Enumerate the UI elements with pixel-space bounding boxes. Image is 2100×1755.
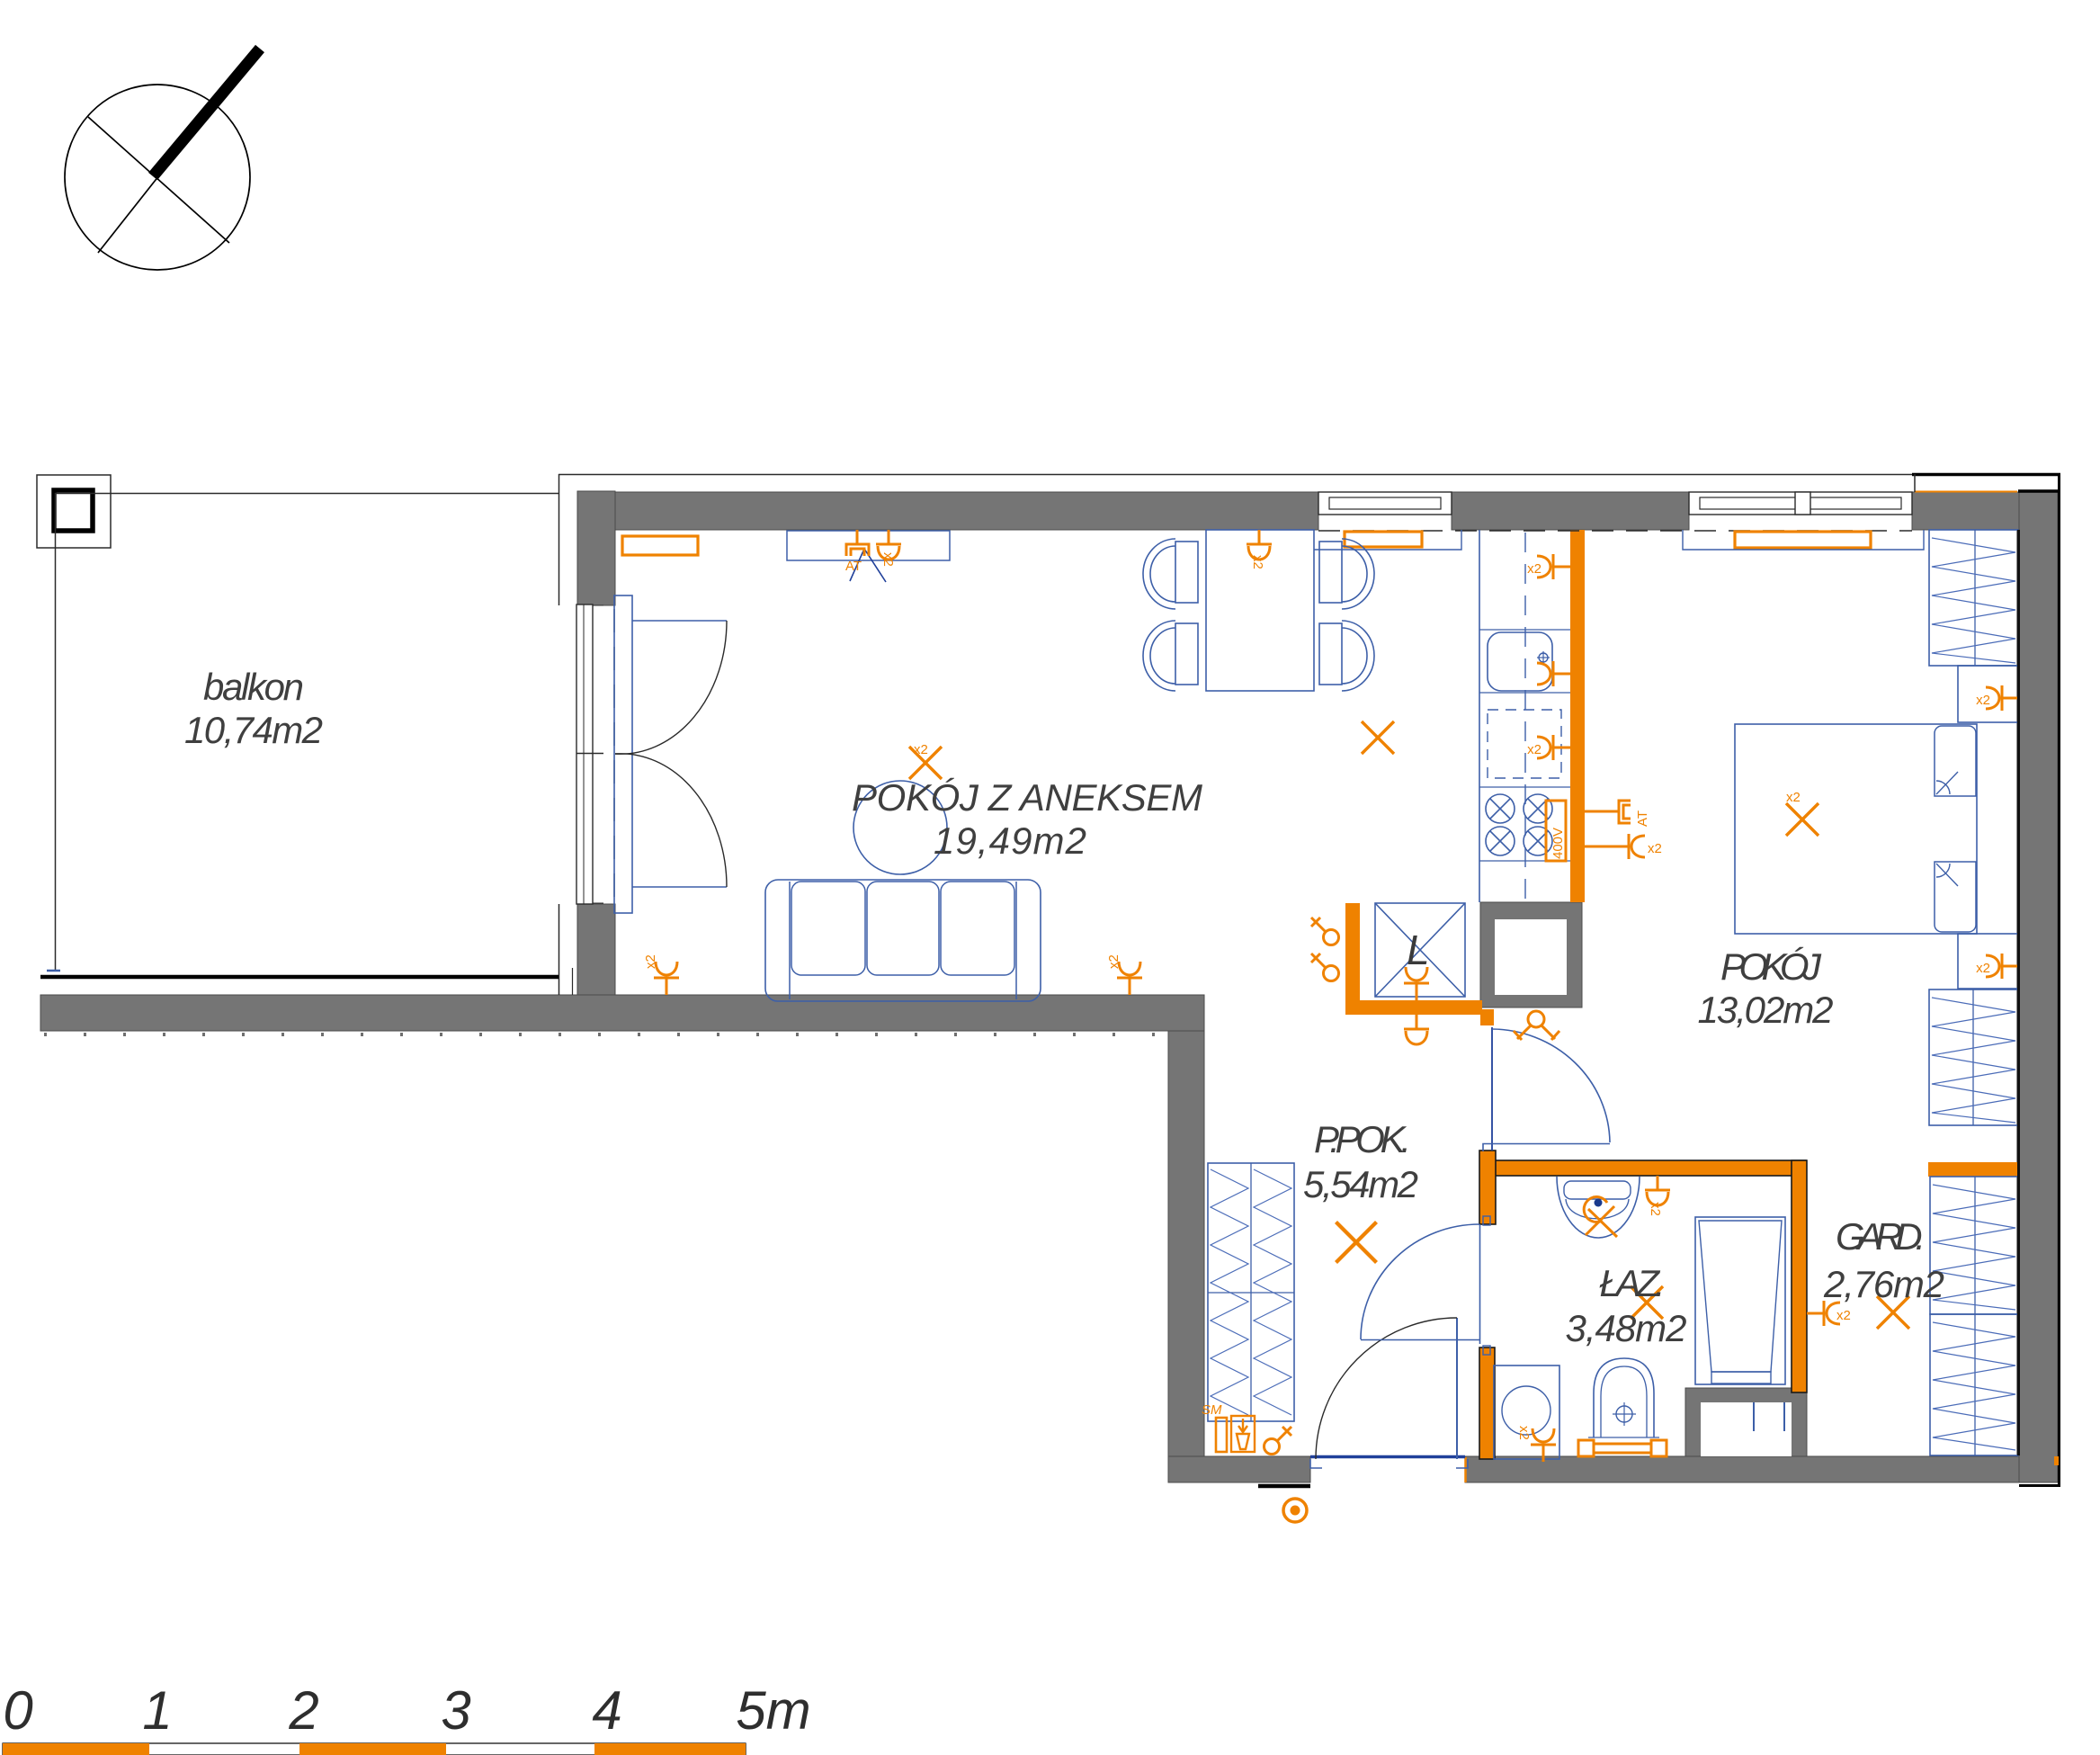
svg-text:2: 2 bbox=[288, 1680, 318, 1741]
svg-text:1: 1 bbox=[142, 1680, 172, 1741]
svg-text:balkon: balkon bbox=[203, 666, 304, 708]
svg-text:13,02m2: 13,02m2 bbox=[1698, 989, 1834, 1031]
svg-text:x2: x2 bbox=[1976, 961, 1990, 976]
svg-text:POKÓJ: POKÓJ bbox=[1720, 945, 1822, 988]
svg-text:SM: SM bbox=[1202, 1402, 1222, 1418]
svg-text:x2: x2 bbox=[1976, 693, 1990, 708]
svg-text:x2: x2 bbox=[1786, 790, 1801, 805]
svg-text:P.POK.: P.POK. bbox=[1314, 1118, 1411, 1160]
svg-text:x2: x2 bbox=[1648, 841, 1662, 856]
svg-text:x2: x2 bbox=[643, 954, 658, 969]
svg-text:x2: x2 bbox=[1527, 561, 1541, 577]
svg-text:10,74m2: 10,74m2 bbox=[184, 709, 323, 751]
svg-text:19,49m2: 19,49m2 bbox=[934, 819, 1086, 862]
svg-text:L: L bbox=[1407, 927, 1430, 973]
svg-text:x2: x2 bbox=[1527, 742, 1541, 757]
svg-text:ŁAZ.: ŁAZ. bbox=[1600, 1262, 1666, 1304]
svg-text:4: 4 bbox=[592, 1680, 621, 1741]
svg-text:5m: 5m bbox=[736, 1680, 810, 1741]
svg-text:x2: x2 bbox=[880, 552, 896, 567]
svg-text:2,76m2: 2,76m2 bbox=[1823, 1263, 1944, 1305]
svg-text:x2: x2 bbox=[1836, 1308, 1851, 1323]
svg-text:POKÓJ Z ANEKSEM: POKÓJ Z ANEKSEM bbox=[852, 776, 1202, 819]
svg-text:3: 3 bbox=[441, 1680, 470, 1741]
svg-text:400V: 400V bbox=[1550, 828, 1566, 859]
svg-text:x2: x2 bbox=[1250, 555, 1265, 569]
svg-text:x2: x2 bbox=[1106, 954, 1121, 969]
svg-text:GARD.: GARD. bbox=[1836, 1215, 1926, 1258]
svg-text:3,48m2: 3,48m2 bbox=[1566, 1307, 1687, 1349]
svg-text:x2: x2 bbox=[1648, 1202, 1663, 1216]
svg-text:5,54m2: 5,54m2 bbox=[1303, 1163, 1418, 1205]
svg-text:0: 0 bbox=[3, 1680, 32, 1741]
svg-text:x2: x2 bbox=[914, 742, 928, 757]
svg-text:AT: AT bbox=[1635, 810, 1650, 827]
svg-text:AT: AT bbox=[845, 559, 862, 574]
svg-text:x2: x2 bbox=[1516, 1426, 1532, 1440]
